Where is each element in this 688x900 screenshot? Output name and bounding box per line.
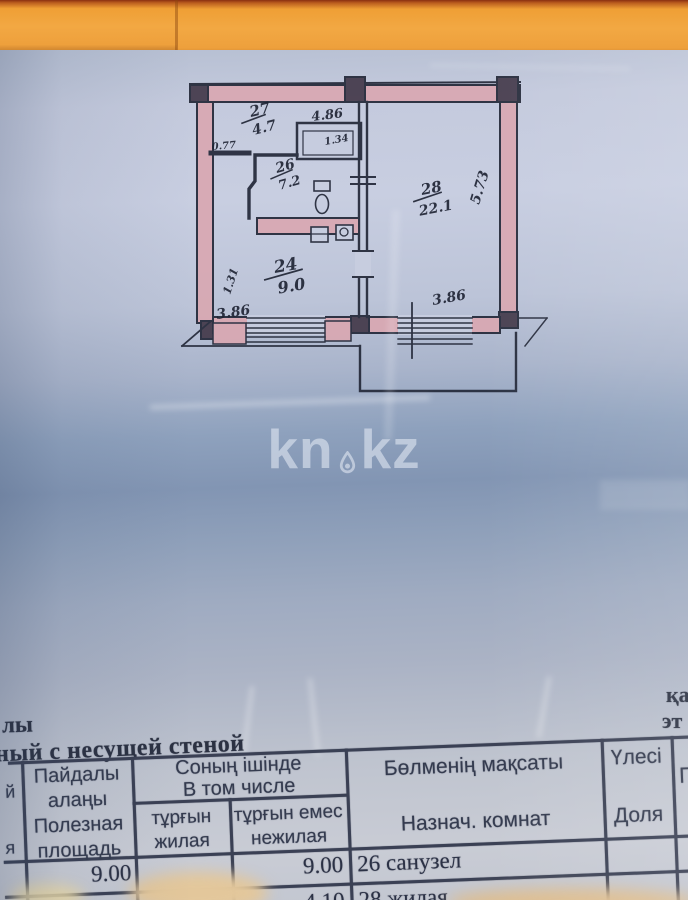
svg-text:3.86: 3.86: [431, 287, 468, 309]
header-cut-left-a: й: [3, 779, 18, 804]
svg-text:9.0: 9.0: [276, 274, 307, 298]
annotation-right-2: эт: [662, 708, 682, 734]
dim-bottom-right: 3.86: [431, 287, 468, 309]
svg-text:5.73: 5.73: [468, 169, 493, 207]
room-28-label: 28 22.1: [410, 176, 455, 221]
svg-text:0.77: 0.77: [211, 140, 236, 153]
annotation-right-1: қа: [666, 682, 688, 708]
svg-text:1.34: 1.34: [324, 133, 350, 148]
watermark-kz: kz: [361, 422, 421, 477]
watermark: kn kz: [0, 422, 688, 477]
paper-crease: [537, 676, 552, 738]
plan-walls: [182, 77, 547, 391]
header-including: Соның ішінде В том числе: [131, 751, 347, 803]
floor-plan: 27 4.7 4.86 1.34 0.77 26 7.2: [175, 55, 575, 405]
paper: 27 4.7 4.86 1.34 0.77 26 7.2: [0, 50, 688, 900]
header-purpose: Бөлменің мақсаты Назнач. комнат: [345, 749, 604, 839]
header-useful-area: Пайдалы алаңы Полезная площадь: [23, 761, 133, 865]
row2-purpose: 28 жилая: [358, 884, 448, 900]
header-living: тұрғын жилая: [133, 804, 231, 856]
dim-hall: 0.77: [211, 140, 236, 153]
binder-crease: [175, 0, 178, 56]
room-24-label: 24 9.0: [261, 253, 307, 299]
room-27-label: 27 4.7: [237, 98, 278, 141]
header-share: Үлесі Доля: [601, 744, 674, 829]
header-cut-right: П: [677, 763, 688, 788]
room-26-label: 26 7.2: [266, 156, 303, 196]
row1-purpose: 26 санузел: [357, 847, 462, 877]
closet-label: 1.34: [324, 133, 350, 148]
dim-right: 5.73: [468, 169, 493, 207]
svg-text:7.2: 7.2: [277, 173, 303, 194]
binder-right: [177, 0, 688, 57]
header-cut-left-b: я: [3, 835, 18, 860]
header-nonliving: тұрғын емес нежилая: [229, 800, 349, 852]
plan-labels: 27 4.7 4.86 1.34 0.77 26 7.2: [211, 98, 493, 323]
svg-text:22.1: 22.1: [417, 197, 455, 219]
binder-left: [0, 0, 177, 53]
dim-kitchen-left: 1.31: [220, 266, 241, 296]
document-photo: 27 4.7 4.86 1.34 0.77 26 7.2: [0, 0, 688, 900]
room-27-area: 4.7: [251, 117, 279, 138]
svg-text:1.31: 1.31: [220, 266, 241, 296]
annotation-left-1: лы: [2, 711, 34, 738]
area-table: Пайдалы алаңы Полезная площадь Соның іші…: [0, 734, 688, 900]
droplet-icon: [339, 451, 356, 474]
paper-crease: [600, 480, 688, 510]
watermark-kn: kn: [267, 422, 333, 477]
paper-crease: [308, 678, 320, 756]
